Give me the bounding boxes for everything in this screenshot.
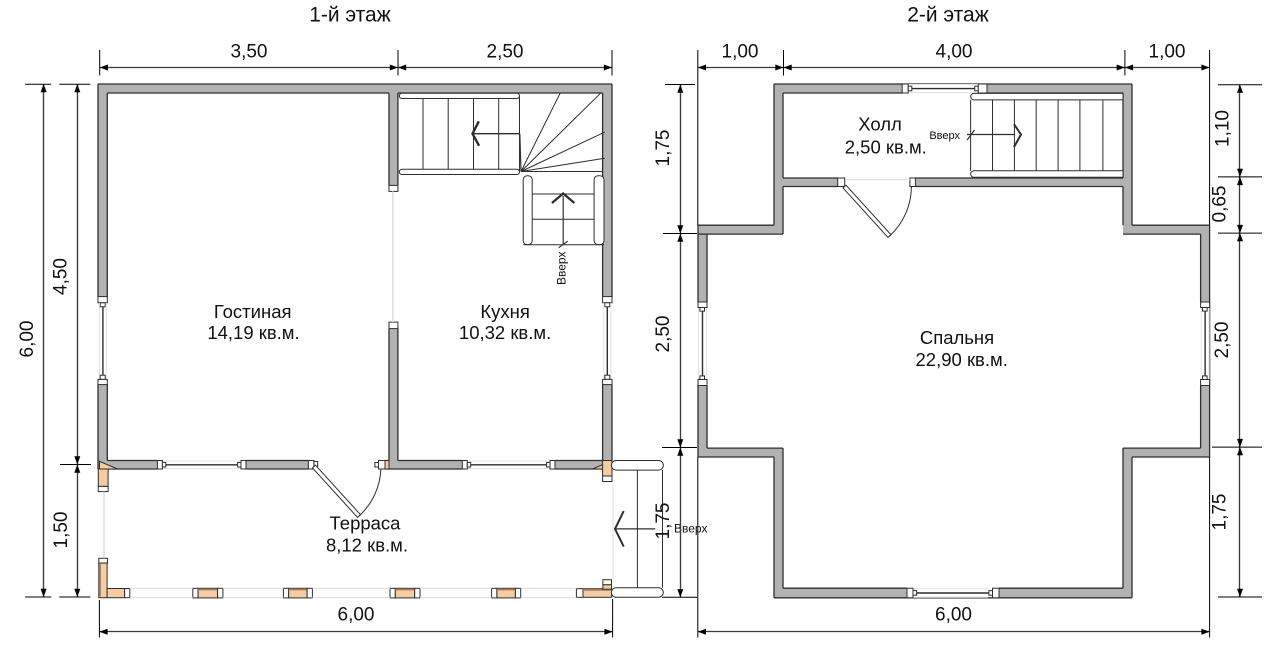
svg-text:6,00: 6,00 — [935, 605, 972, 626]
svg-text:2-й этаж: 2-й этаж — [907, 4, 989, 27]
svg-text:Холл: Холл — [858, 114, 902, 135]
svg-text:0,65: 0,65 — [1210, 186, 1231, 223]
svg-text:Вверх: Вверх — [929, 130, 960, 142]
svg-text:6,00: 6,00 — [17, 321, 38, 358]
svg-text:4,00: 4,00 — [936, 42, 973, 63]
svg-text:22,90 кв.м.: 22,90 кв.м. — [916, 349, 1008, 370]
svg-text:8,12 кв.м.: 8,12 кв.м. — [326, 535, 408, 556]
svg-text:1,75: 1,75 — [653, 130, 674, 167]
svg-text:Спальня: Спальня — [920, 327, 994, 348]
svg-text:1,50: 1,50 — [51, 512, 72, 549]
svg-text:10,32 кв.м.: 10,32 кв.м. — [459, 322, 551, 343]
svg-text:Вверх: Вверх — [555, 252, 569, 285]
svg-text:2,50: 2,50 — [653, 316, 674, 353]
svg-text:2,50 кв.м.: 2,50 кв.м. — [845, 137, 927, 158]
svg-text:1,10: 1,10 — [1213, 110, 1234, 147]
svg-text:3,50: 3,50 — [231, 42, 268, 63]
svg-text:1,00: 1,00 — [1149, 42, 1186, 63]
svg-text:2,50: 2,50 — [487, 42, 524, 63]
svg-text:14,19 кв.м.: 14,19 кв.м. — [207, 322, 299, 343]
svg-text:Гостиная: Гостиная — [214, 301, 292, 322]
svg-text:Кухня: Кухня — [480, 301, 530, 322]
svg-text:1,75: 1,75 — [653, 503, 674, 540]
svg-text:Вверх: Вверх — [674, 522, 707, 536]
svg-text:2,50: 2,50 — [1212, 322, 1233, 359]
svg-text:6,00: 6,00 — [338, 605, 375, 626]
svg-text:1-й этаж: 1-й этаж — [309, 4, 391, 27]
svg-text:1,00: 1,00 — [722, 42, 759, 63]
svg-text:Терраса: Терраса — [330, 513, 402, 534]
svg-text:1,75: 1,75 — [1210, 494, 1231, 531]
svg-text:4,50: 4,50 — [51, 258, 72, 295]
